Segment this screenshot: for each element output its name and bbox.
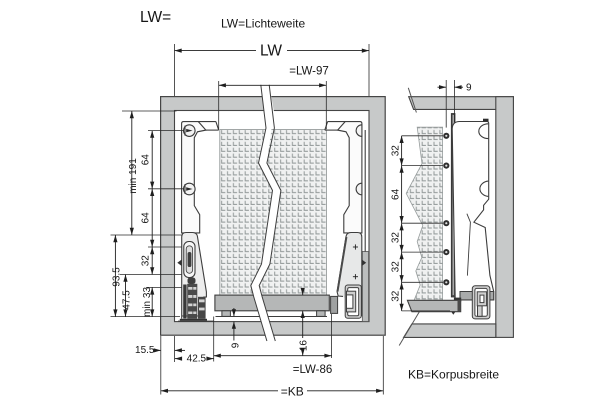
svg-text:=LW-86: =LW-86 <box>293 364 333 376</box>
svg-text:15.5: 15.5 <box>135 345 155 356</box>
svg-text:9: 9 <box>466 83 472 94</box>
svg-text:64: 64 <box>140 212 151 224</box>
svg-text:KB=Korpusbreite: KB=Korpusbreite <box>408 368 499 382</box>
svg-text:LW=Lichteweite: LW=Lichteweite <box>221 17 305 31</box>
svg-text:32: 32 <box>391 232 402 244</box>
svg-text:min 33: min 33 <box>142 287 153 317</box>
svg-text:32: 32 <box>391 261 402 273</box>
svg-text:16: 16 <box>299 340 310 352</box>
svg-text:47.5: 47.5 <box>122 290 133 310</box>
svg-text:32: 32 <box>140 255 151 267</box>
svg-text:=LW-97: =LW-97 <box>289 66 329 78</box>
svg-text:LW: LW <box>260 43 282 60</box>
svg-text:=KB: =KB <box>281 384 304 398</box>
svg-text:min 191: min 191 <box>128 158 139 194</box>
svg-text:64: 64 <box>140 154 151 166</box>
svg-text:93.5: 93.5 <box>111 267 122 287</box>
svg-text:42.5: 42.5 <box>187 354 207 365</box>
svg-text:32: 32 <box>391 290 402 302</box>
svg-text:64: 64 <box>391 188 402 200</box>
svg-text:32: 32 <box>391 145 402 157</box>
svg-text:9: 9 <box>231 342 242 348</box>
svg-text:LW=: LW= <box>140 9 171 26</box>
